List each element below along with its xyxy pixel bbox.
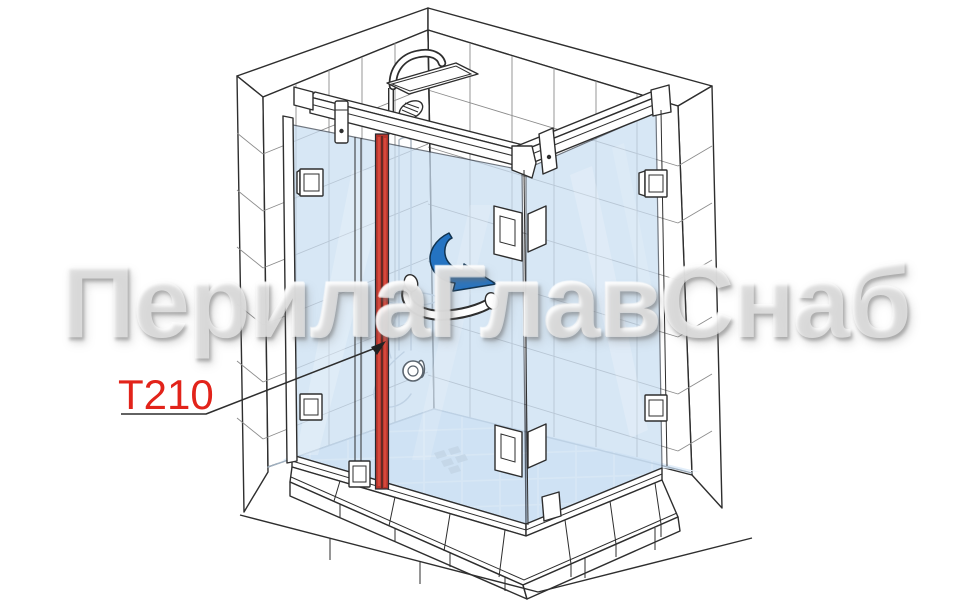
wall-clamp-right-lower <box>645 395 667 421</box>
mixer-knob <box>403 361 425 382</box>
technical-drawing: T210 <box>0 0 970 606</box>
door-roller-right <box>539 128 557 174</box>
panel-bottom-clamp <box>349 461 370 487</box>
wall-clamp-left-lower <box>300 394 322 420</box>
wall-clamp-right-upper <box>639 170 667 197</box>
door-roller-left <box>335 101 348 143</box>
door-seal-strip <box>376 134 389 489</box>
part-label: T210 <box>118 371 214 418</box>
wall-clamp-left-upper <box>297 169 323 196</box>
shower-enclosure-illustration: T210 ПерилаГлавСнаб <box>0 0 970 606</box>
door-bottom-guide <box>542 492 561 521</box>
